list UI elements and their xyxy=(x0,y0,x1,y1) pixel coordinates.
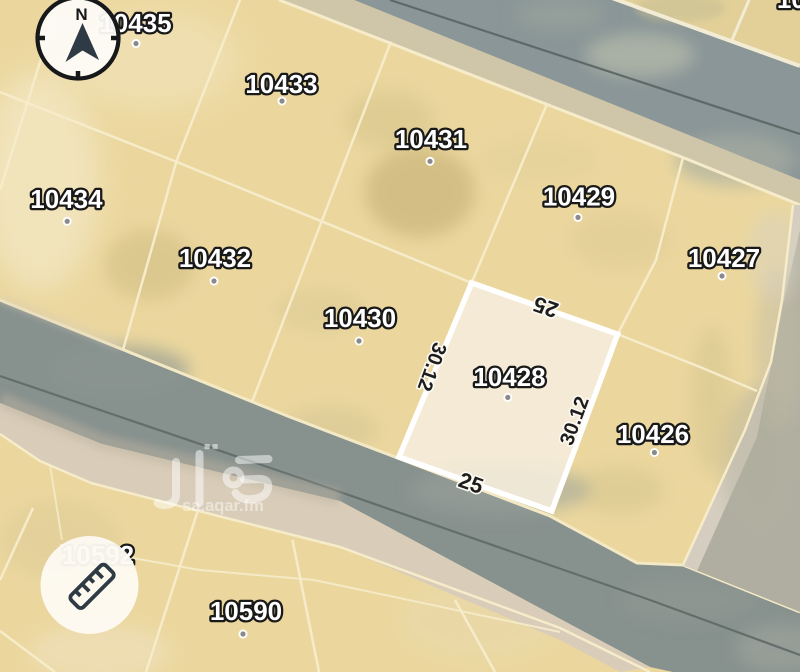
svg-text:10431: 10431 xyxy=(395,124,467,154)
svg-text:10434: 10434 xyxy=(30,184,103,214)
svg-text:sa.aqar.fm: sa.aqar.fm xyxy=(182,497,264,515)
svg-text:10430: 10430 xyxy=(324,303,396,333)
svg-text:N: N xyxy=(75,5,87,24)
svg-text:10429: 10429 xyxy=(543,182,615,212)
svg-text:10428: 10428 xyxy=(473,362,545,392)
svg-text:10432: 10432 xyxy=(179,243,251,273)
svg-text:10433: 10433 xyxy=(245,69,317,99)
svg-text:10427: 10427 xyxy=(688,243,760,273)
svg-text:10426: 10426 xyxy=(617,419,689,449)
svg-text:10590: 10590 xyxy=(210,596,282,626)
svg-text:10425: 10425 xyxy=(777,0,800,14)
